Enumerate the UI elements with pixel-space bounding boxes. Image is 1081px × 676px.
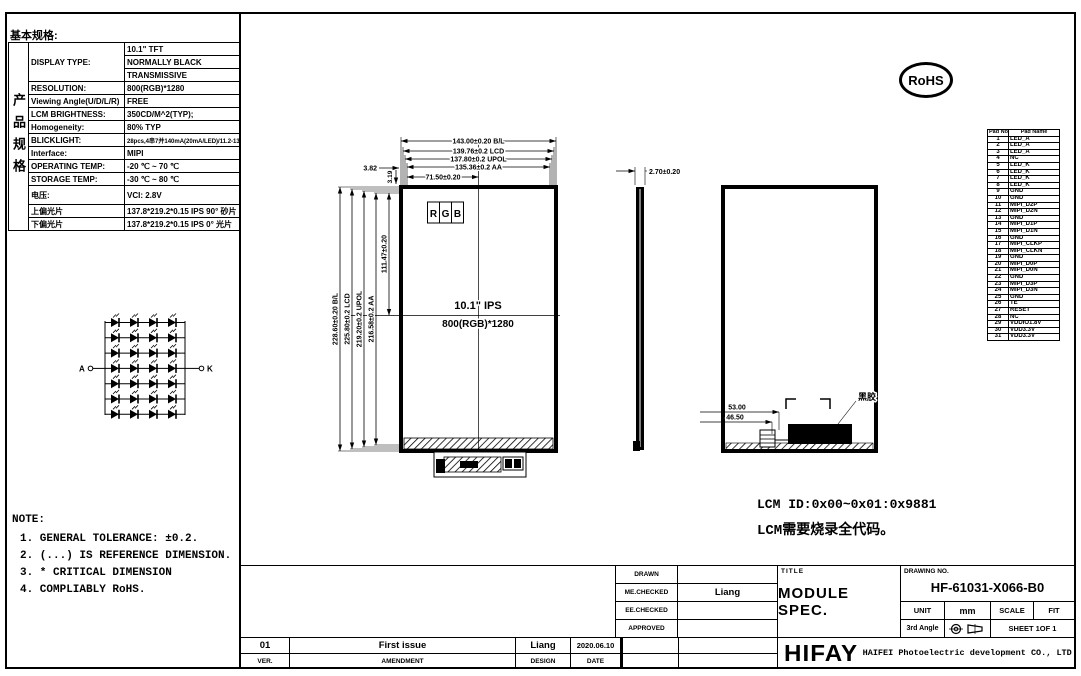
dim-height-upol: 219.20±0.2 UPOL — [357, 290, 364, 347]
drawing-no-cell: DRAWING NO. HF-61031-X066-B0 — [900, 565, 1075, 602]
led-diode-symbol — [149, 359, 157, 373]
revision-design-label: DESIGN — [515, 653, 571, 669]
led-diode-symbol — [130, 314, 138, 328]
note-item-1: 1. GENERAL TOLERANCE: ±0.2. — [20, 533, 198, 545]
led-diode-symbol — [130, 375, 138, 389]
led-diode-symbol — [149, 405, 157, 419]
drawn-label: DRAWN — [615, 565, 678, 584]
cathode-label: K — [207, 365, 213, 374]
hifay-logo: HIFAY — [784, 640, 858, 667]
dim-connector-465: 46.50 — [726, 415, 744, 422]
led-diode-symbol — [111, 329, 119, 343]
rgb-letter-r: R — [430, 209, 438, 220]
panel-resolution-label: 800(RGB)*1280 — [442, 319, 514, 330]
led-diode-symbol — [130, 405, 138, 419]
fpc-connector — [434, 452, 526, 477]
dim-width-upol: 137.80±0.2 UPOL — [450, 157, 507, 164]
revision-date-label: DATE — [570, 653, 621, 669]
dim-offset-319: 3.19 — [387, 170, 394, 183]
revision-ver-label: VER. — [240, 653, 290, 669]
empty-cell — [622, 637, 679, 654]
side-view: 2.70±0.20 — [616, 167, 680, 451]
ee-checked-value — [677, 601, 778, 620]
rgb-pixel-diagram: R G B — [428, 202, 464, 223]
led-diode-symbol — [149, 329, 157, 343]
company-name: HAIFEI Photoelectric development CO., LT… — [863, 648, 1072, 658]
sheet-label: SHEET 1OF 1 — [990, 619, 1075, 638]
led-diode-symbol — [168, 344, 176, 358]
dim-height-aa: 216.58±0.2 AA — [369, 296, 376, 343]
me-checked-value: Liang — [677, 583, 778, 602]
lcm-id-text: LCM ID:0x00~0x01:0x9881 — [757, 497, 936, 512]
revision-ver-value: 01 — [240, 637, 290, 654]
led-diode-symbol — [111, 314, 119, 328]
led-diode-symbol — [149, 390, 157, 404]
led-diode-symbol — [111, 405, 119, 419]
unit-value: mm — [944, 601, 991, 620]
dim-height-bl: 228.60±0.20 B/L — [333, 292, 340, 345]
drawing-no-label: DRAWING NO. — [904, 568, 949, 575]
led-diode-symbol — [168, 405, 176, 419]
led-backlight-circuit: A K — [79, 314, 213, 419]
projection-symbol-cell — [944, 619, 991, 638]
revision-amendment-label: AMENDMENT — [289, 653, 516, 669]
lcm-burn-text: LCM需要烧录全代码。 — [757, 519, 894, 539]
panel-size-label: 10.1" IPS — [454, 300, 501, 312]
led-diode-symbol — [111, 390, 119, 404]
document-title: MODULE SPEC. — [778, 585, 900, 619]
drawn-value — [677, 565, 778, 584]
dim-height-lcd: 225.80±0.2 LCD — [345, 293, 352, 344]
led-diode-symbol — [168, 359, 176, 373]
dim-connector-53: 53.00 — [728, 405, 746, 412]
led-diode-symbol — [111, 359, 119, 373]
black-glue-label: 黑胶 — [858, 391, 876, 402]
third-angle-projection-icon — [948, 622, 988, 636]
dim-thickness: 2.70±0.20 — [649, 169, 680, 176]
led-diode-symbol — [149, 375, 157, 389]
led-diode-symbol — [168, 375, 176, 389]
black-glue-area — [788, 424, 852, 444]
empty-cell — [678, 653, 778, 669]
led-diode-symbol — [149, 314, 157, 328]
back-view: 黑胶 53.00 46.50 — [700, 187, 876, 451]
dim-width-lcd: 139.76±0.2 LCD — [453, 149, 504, 156]
dim-offset-382: 3.82 — [363, 166, 377, 173]
top-dimensions: 143.00±0.20 B/L 139.76±0.2 LCD 137.80±0.… — [363, 137, 556, 185]
dim-height-half: 111.47±0.20 — [382, 235, 389, 273]
scale-value: FIT — [1033, 601, 1075, 620]
note-item-2: 2. (...) IS REFERENCE DIMENSION. — [20, 550, 231, 562]
left-dimensions: 228.60±0.20 B/L 225.80±0.2 LCD 219.20±0.… — [333, 187, 400, 451]
ee-checked-label: EE.CHECKED — [615, 601, 678, 620]
dim-width-aa: 135.36±0.2 AA — [455, 165, 502, 172]
note-item-3: 3. * CRITICAL DIMENSION — [20, 567, 172, 579]
dim-width-half: 71.50±0.20 — [426, 175, 461, 182]
empty-cell — [622, 653, 679, 669]
anode-label: A — [79, 365, 85, 374]
led-diode-symbol — [111, 375, 119, 389]
led-diode-symbol — [130, 359, 138, 373]
me-checked-label: ME.CHECKED — [615, 583, 678, 602]
approved-value — [677, 619, 778, 638]
led-diode-symbol — [149, 344, 157, 358]
engineering-drawing-page: 基本规格: 产品规格DISPLAY TYPE:10.1" TFTNORMALLY… — [0, 0, 1081, 676]
scale-label: SCALE — [990, 601, 1034, 620]
title-label: TITLE — [781, 568, 804, 575]
projection-angle-label: 3rd Angle — [900, 619, 945, 638]
drawing-no-value: HF-61031-X066-B0 — [931, 580, 1044, 595]
revision-design-value: Liang — [515, 637, 571, 654]
led-diode-symbol — [168, 314, 176, 328]
revision-date-value: 2020.06.10 — [570, 637, 621, 654]
revision-amendment-value: First issue — [289, 637, 516, 654]
note-title: NOTE: — [12, 514, 45, 526]
led-diode-symbol — [130, 329, 138, 343]
title-cell: TITLE MODULE SPEC. — [777, 565, 901, 638]
led-diode-symbol — [168, 390, 176, 404]
led-diode-symbol — [168, 329, 176, 343]
rgb-letter-g: G — [442, 209, 450, 220]
approved-label: APPROVED — [615, 619, 678, 638]
led-diode-symbol — [130, 344, 138, 358]
rgb-letter-b: B — [454, 209, 461, 220]
empty-cell — [678, 637, 778, 654]
dim-width-bl: 143.00±0.20 B/L — [452, 139, 505, 146]
led-diode-symbol — [111, 344, 119, 358]
company-cell: HIFAY HAIFEI Photoelectric development C… — [777, 637, 1075, 669]
led-diode-symbol — [130, 390, 138, 404]
unit-label: UNIT — [900, 601, 945, 620]
note-item-4: 4. COMPLIABLY RoHS. — [20, 584, 145, 596]
